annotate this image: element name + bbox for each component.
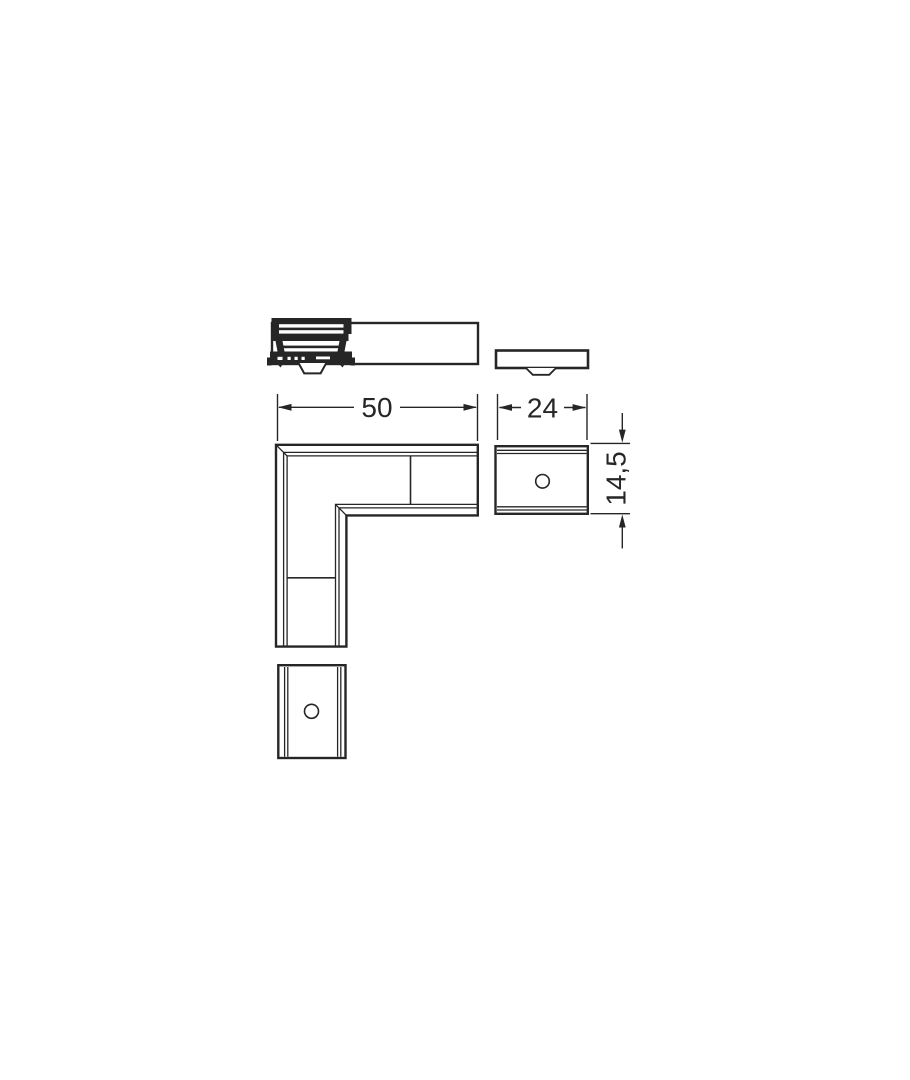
corner-outline <box>276 445 478 647</box>
edge-band-line <box>336 504 478 646</box>
front-view-connector-end <box>496 446 588 514</box>
arrowhead-left-icon <box>499 404 512 411</box>
arrowhead-down-icon <box>619 430 626 443</box>
dimension-length-label: 50 <box>361 392 392 423</box>
side-view-arm <box>267 318 478 373</box>
arrowhead-right-icon <box>464 404 478 411</box>
profile-slot <box>295 357 298 360</box>
edge-band-line <box>339 508 478 647</box>
profile-slot <box>302 357 305 360</box>
technical-drawing-canvas: 50 24 14,5 <box>0 0 910 1080</box>
dimension-width: 24 <box>498 392 588 440</box>
profile-foot <box>339 363 346 368</box>
base-plate-side <box>496 351 588 369</box>
arrowhead-right-icon <box>573 404 586 411</box>
corner-connector-drawing: 50 24 14,5 <box>0 0 910 1080</box>
profile-foot <box>351 358 356 366</box>
side-view-base-plate <box>496 351 588 375</box>
arrowhead-up-icon <box>619 515 626 528</box>
profile-fin <box>272 318 352 324</box>
locking-tab <box>526 368 556 375</box>
top-view-corner-connector <box>276 445 478 647</box>
dimension-height: 14,5 <box>591 413 632 549</box>
profile-fin <box>276 328 345 331</box>
dimension-width-label: 24 <box>527 392 558 423</box>
profile-fin <box>273 334 349 341</box>
profile-slot <box>316 357 330 360</box>
dimension-length: 50 <box>278 392 478 441</box>
profile-foot <box>267 358 272 366</box>
arrowhead-left-icon <box>278 404 292 411</box>
bottom-view-connector-end <box>278 665 345 758</box>
profile-slot <box>288 357 291 360</box>
profile-fin <box>281 346 341 349</box>
dimension-height-label: 14,5 <box>601 451 632 506</box>
profile-slot <box>278 357 283 360</box>
profile-foot <box>277 363 284 368</box>
end-face <box>496 446 588 514</box>
locking-tab <box>299 363 327 373</box>
